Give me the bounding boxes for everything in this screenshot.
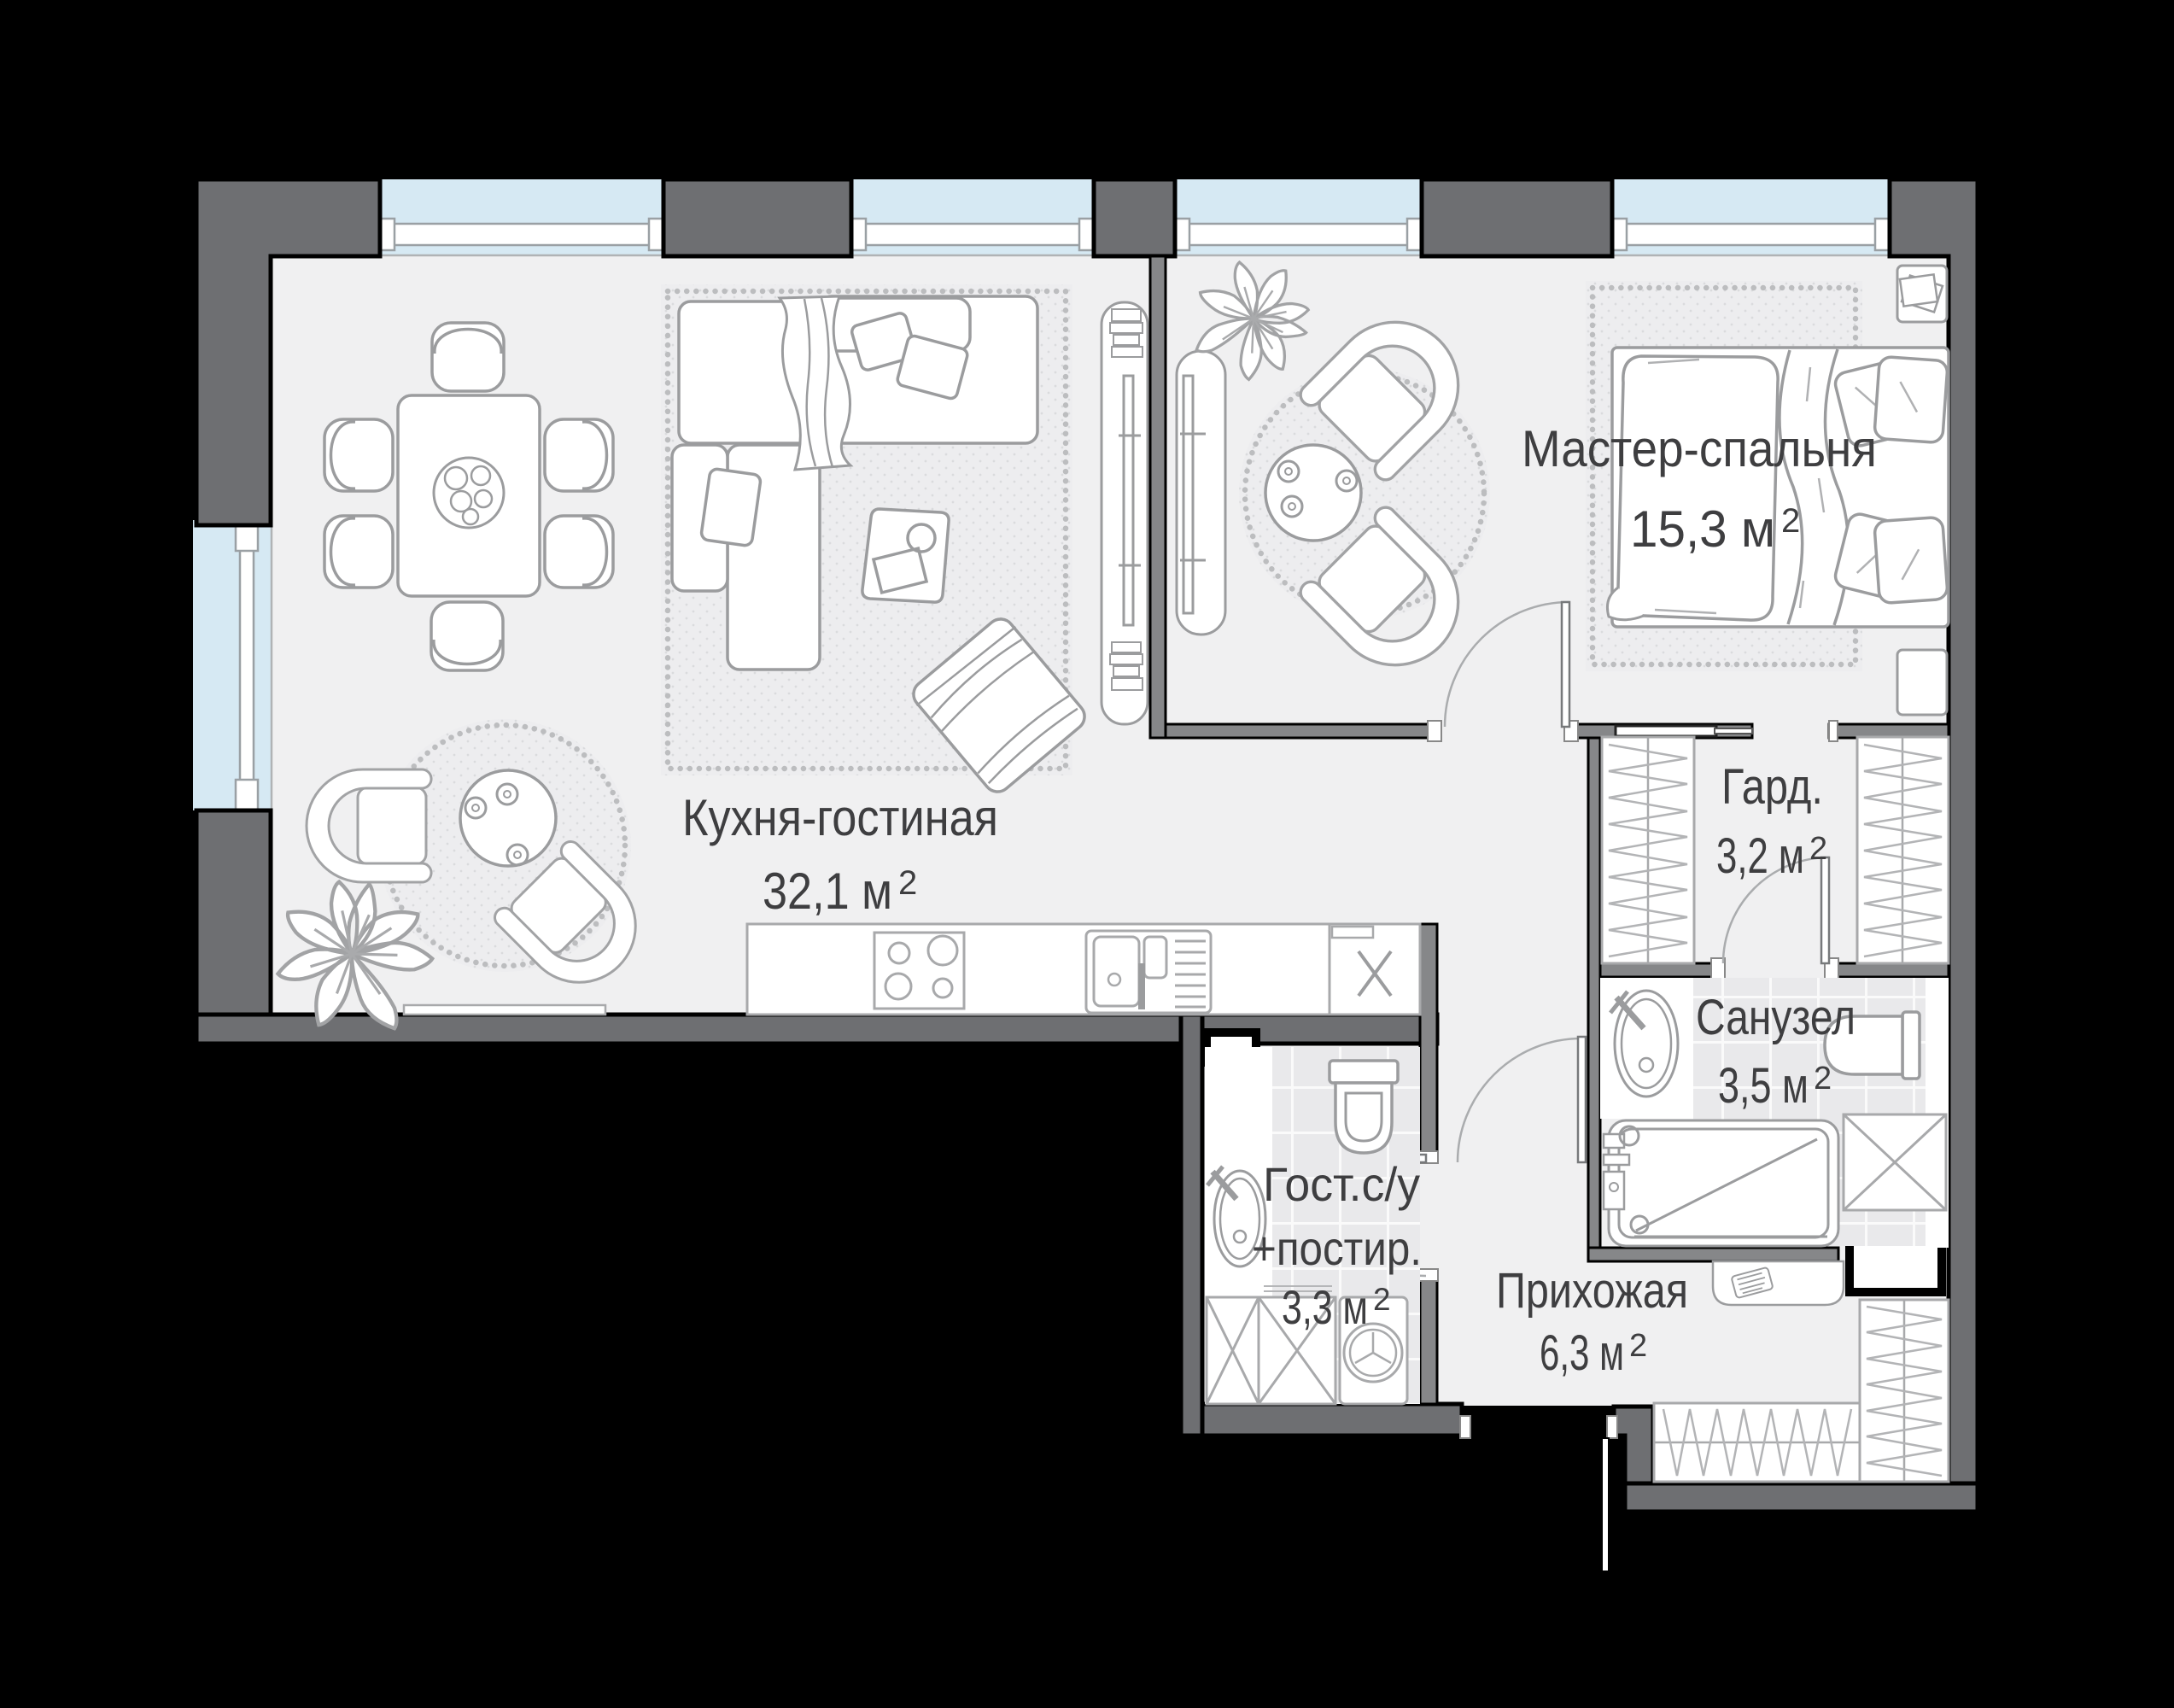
svg-text:2: 2	[898, 864, 917, 902]
svg-text:+постир.: +постир.	[1252, 1221, 1422, 1275]
svg-text:15,3 м: 15,3 м	[1630, 500, 1775, 558]
svg-text:2: 2	[1781, 502, 1800, 540]
svg-text:3,5 м: 3,5 м	[1718, 1058, 1809, 1114]
svg-text:32,1 м: 32,1 м	[763, 863, 892, 920]
svg-text:3,3 м: 3,3 м	[1282, 1280, 1368, 1334]
svg-text:Гард.: Гард.	[1721, 759, 1823, 815]
svg-text:2: 2	[1809, 831, 1827, 867]
svg-text:Прихожая: Прихожая	[1496, 1263, 1688, 1319]
svg-text:Санузел: Санузел	[1696, 990, 1855, 1045]
svg-text:Гост.с/у: Гост.с/у	[1263, 1157, 1420, 1211]
svg-text:2: 2	[1373, 1282, 1391, 1317]
svg-text:2: 2	[1814, 1061, 1832, 1097]
svg-text:2: 2	[1629, 1328, 1647, 1364]
svg-text:Кухня-гостиная: Кухня-гостиная	[682, 789, 998, 846]
svg-text:3,2 м: 3,2 м	[1716, 828, 1804, 884]
svg-text:Мастер-спальня: Мастер-спальня	[1522, 420, 1877, 477]
svg-text:6,3 м: 6,3 м	[1540, 1325, 1624, 1381]
